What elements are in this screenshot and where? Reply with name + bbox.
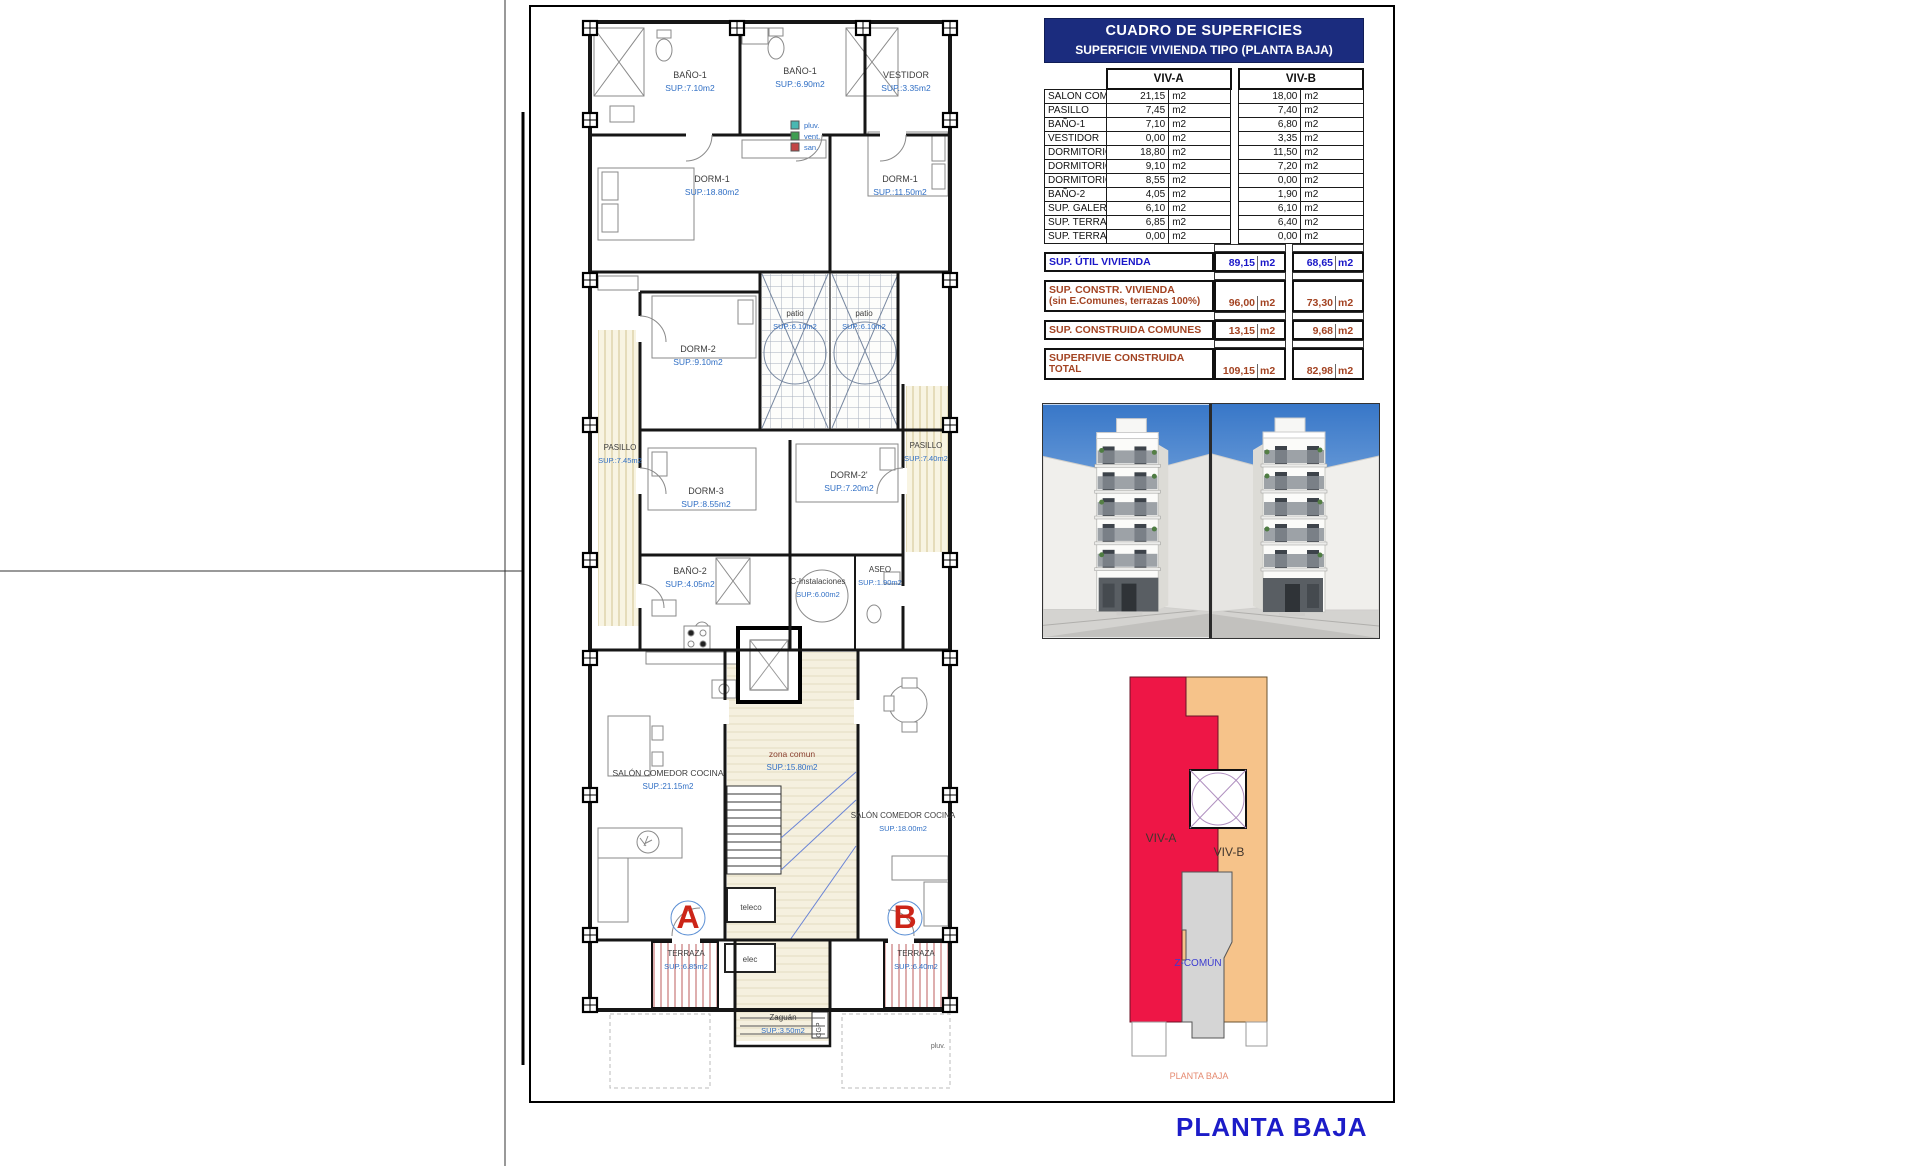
room-name: TERRAZA	[897, 949, 935, 958]
floor-plan-drawing: BAÑO-1SUP.:7.10m2BAÑO-1SUP.:6.90m2VESTID…	[0, 0, 1920, 1166]
plan-mark: pluv.	[931, 1043, 945, 1050]
legend-chip	[791, 132, 799, 140]
room-area: SUP.:6.85m2	[664, 962, 708, 971]
room-name: SALÓN COMEDOR COCINA	[613, 768, 724, 778]
legend-label: san.	[804, 143, 818, 152]
table-row: DORMITORIO-118,80m211,50m2	[1045, 146, 1364, 160]
patio-grid	[760, 272, 898, 430]
summary-row: SUP. CONSTRUIDA COMUNES13,15m29,68m2	[1044, 320, 1364, 340]
room-name: DORM-2	[680, 344, 716, 354]
summary-value: 109,15m2	[1214, 348, 1286, 380]
col-header-viv-a: VIV-A	[1107, 69, 1231, 89]
room-name: DORM-3	[688, 486, 724, 496]
table-row: PASILLO7,45m27,40m2	[1045, 104, 1364, 118]
summary-value: 96,00m2	[1214, 280, 1286, 312]
room-name: VESTIDOR	[883, 70, 930, 80]
room-area: SUP.:7.10m2	[665, 83, 715, 93]
room-area: SUP.:9.10m2	[673, 357, 723, 367]
room-name: DORM-1	[694, 174, 730, 184]
corridor-left	[598, 330, 640, 626]
building-renders	[1042, 403, 1380, 639]
summary-value: 82,98m2	[1292, 348, 1364, 380]
summary-row: SUP. ÚTIL VIVIENDA89,15m268,65m2	[1044, 252, 1364, 272]
page-title: PLANTA BAJA	[1176, 1112, 1368, 1143]
plan-mark: teleco	[740, 903, 762, 912]
summary-value: 73,30m2	[1292, 280, 1364, 312]
room-name: BAÑO-2	[673, 566, 707, 576]
summary-spacer	[1044, 340, 1364, 348]
room-area: SUP.:6.90m2	[775, 79, 825, 89]
room-name: BAÑO-1	[673, 70, 707, 80]
diagram-label: VIV-A	[1146, 831, 1177, 845]
legend-label: pluv.	[804, 121, 819, 130]
summary-label: SUPERFIVIE CONSTRUIDATOTAL	[1044, 348, 1214, 380]
room-name: C-Instalaciones	[790, 577, 845, 586]
building-render-left	[1043, 404, 1209, 638]
table-subtitle: SUPERFICIE VIVIENDA TIPO (PLANTA BAJA)	[1047, 43, 1361, 57]
room-area: SUP.:6.40m2	[894, 962, 938, 971]
room-name: PASILLO	[604, 443, 637, 452]
plan-mark: CGP	[816, 1022, 823, 1038]
room-area: SUP.:6.10m2	[842, 322, 886, 331]
diagram-patio	[1190, 770, 1246, 828]
room-area: SUP.:15.80m2	[767, 763, 819, 772]
table-row: VESTIDOR0,00m23,35m2	[1045, 132, 1364, 146]
room-name: patio	[855, 309, 873, 318]
diagram-label: PLANTA BAJA	[1170, 1071, 1229, 1081]
table-row: BAÑO-17,10m26,80m2	[1045, 118, 1364, 132]
room-name: ASEO	[869, 565, 891, 574]
column-header-row: VIV-A VIV-B	[1045, 69, 1364, 89]
table-row: DORMITORIO-29,10m27,20m2	[1045, 160, 1364, 174]
summary-value: 13,15m2	[1214, 320, 1286, 340]
room-name: SALÓN COMEDOR COCINA	[851, 811, 956, 820]
diagram-label: VIV-B	[1214, 845, 1245, 859]
col-header-viv-b: VIV-B	[1239, 69, 1363, 89]
room-area: SUP.:3.35m2	[881, 83, 931, 93]
room-area: SUP.:7.45m2	[598, 456, 642, 465]
room-area: SUP.:6.00m2	[796, 590, 840, 599]
summary-spacer	[1044, 244, 1364, 252]
unit-diagram	[1130, 677, 1267, 1056]
legend-chip	[791, 121, 799, 129]
summary-spacer	[1044, 272, 1364, 280]
room-area: SUP.:4.05m2	[665, 579, 715, 589]
table-row: DORMITORIO-38,55m20,00m2	[1045, 174, 1364, 188]
plan-mark: elec	[743, 955, 758, 964]
summary-label: SUP. CONSTRUIDA COMUNES	[1044, 320, 1214, 340]
summary-value: 68,65m2	[1292, 252, 1364, 272]
room-name: zona comun	[769, 749, 816, 759]
surfaces-table: CUADRO DE SUPERFICIES SUPERFICIE VIVIEND…	[1044, 18, 1364, 380]
table-row: SUP. TERRAZA-16,85m26,40m2	[1045, 216, 1364, 230]
room-name: BAÑO-1	[783, 66, 817, 76]
table-row: SALON COMEDOR COCINA21,15m218,00m2	[1045, 89, 1364, 104]
room-area: SUP.:8.55m2	[681, 499, 731, 509]
room-area: SUP.:7.20m2	[824, 483, 874, 493]
table-title: CUADRO DE SUPERFICIES	[1047, 23, 1361, 39]
legend-chip	[791, 143, 799, 151]
table-row: SUP. TERRAZA-20,00m20,00m2	[1045, 230, 1364, 244]
table-row: BAÑO-24,05m21,90m2	[1045, 188, 1364, 202]
corridor-right	[906, 386, 948, 552]
room-name: Zaguán	[769, 1013, 796, 1022]
plan-mark: A	[676, 899, 699, 935]
table-summary: SUP. ÚTIL VIVIENDA89,15m268,65m2SUP. CON…	[1044, 244, 1364, 380]
room-name: TERRAZA	[667, 949, 705, 958]
room-area: SUP.:6.10m2	[773, 322, 817, 331]
summary-spacer	[1044, 312, 1364, 320]
surfaces-data-table: VIV-A VIV-B SALON COMEDOR COCINA21,15m21…	[1044, 68, 1364, 244]
diagram-label: Z-COMÚN	[1174, 956, 1221, 969]
room-name: patio	[786, 309, 804, 318]
room-name: DORM-1	[882, 174, 918, 184]
summary-row: SUP. CONSTR. VIVIENDA(sin E.Comunes, ter…	[1044, 280, 1364, 312]
table-header: CUADRO DE SUPERFICIES SUPERFICIE VIVIEND…	[1044, 18, 1364, 63]
common-zone-area	[1182, 872, 1232, 1038]
summary-row: SUPERFIVIE CONSTRUIDATOTAL109,15m282,98m…	[1044, 348, 1364, 380]
summary-label: SUP. CONSTR. VIVIENDA(sin E.Comunes, ter…	[1044, 280, 1214, 312]
summary-value: 89,15m2	[1214, 252, 1286, 272]
legend-label: vent.	[804, 132, 820, 141]
room-area: SUP.:1.90m2	[858, 578, 902, 587]
room-area: SUP.:18.80m2	[685, 187, 739, 197]
room-name: PASILLO	[910, 441, 943, 450]
room-area: SUP.:11.50m2	[873, 187, 927, 197]
building-render-right	[1212, 404, 1379, 638]
room-area: SUP.:3.50m2	[761, 1026, 805, 1035]
room-area: SUP.:7.40m2	[904, 454, 948, 463]
plan-mark: B	[893, 899, 916, 935]
room-area: SUP.:18.00m2	[879, 824, 927, 833]
room-name: DORM-2'	[830, 470, 867, 480]
summary-value: 9,68m2	[1292, 320, 1364, 340]
room-area: SUP.:21.15m2	[643, 782, 695, 791]
summary-label: SUP. ÚTIL VIVIENDA	[1044, 252, 1214, 272]
table-row: SUP. GALERIA/PATIO6,10m26,10m2	[1045, 202, 1364, 216]
